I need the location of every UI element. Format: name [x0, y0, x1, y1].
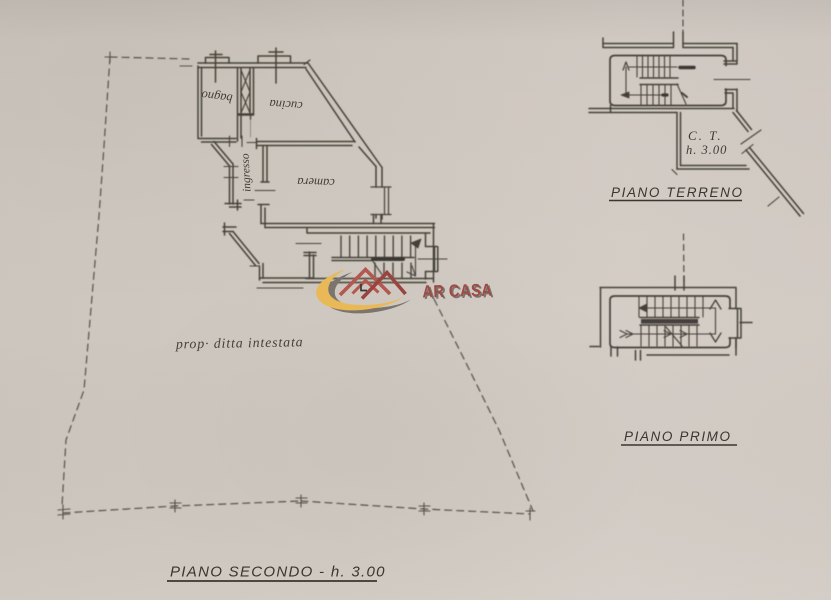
svg-text:h. 3.00: h. 3.00: [686, 143, 727, 157]
svg-text:PIANO PRIMO: PIANO PRIMO: [624, 429, 732, 444]
svg-text:C. T.: C. T.: [688, 128, 723, 143]
svg-text:camera: camera: [297, 175, 335, 190]
svg-text:PIANO SECONDO - h. 3.00: PIANO SECONDO - h. 3.00: [170, 564, 386, 581]
svg-text:PIANO TERRENO: PIANO TERRENO: [611, 185, 744, 200]
svg-text:ingresso: ingresso: [240, 153, 254, 192]
svg-text:cucina: cucina: [269, 97, 303, 113]
svg-text:prop· ditta intestata: prop· ditta intestata: [175, 334, 304, 351]
svg-text:AR CASA: AR CASA: [422, 281, 492, 302]
